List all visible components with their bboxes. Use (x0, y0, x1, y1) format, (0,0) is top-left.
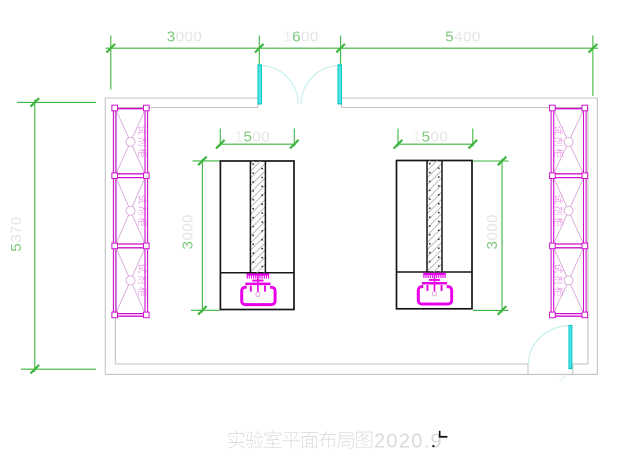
svg-text:1600: 1600 (283, 29, 318, 46)
svg-text:3000: 3000 (167, 29, 202, 46)
svg-text:3000: 3000 (180, 214, 197, 249)
svg-text:2020.9: 2020.9 (374, 431, 443, 453)
svg-text:1500: 1500 (235, 129, 270, 146)
svg-text:5370: 5370 (8, 216, 25, 251)
svg-text:3000: 3000 (484, 214, 501, 249)
svg-text:5400: 5400 (445, 29, 480, 46)
svg-text:1500: 1500 (413, 129, 448, 146)
